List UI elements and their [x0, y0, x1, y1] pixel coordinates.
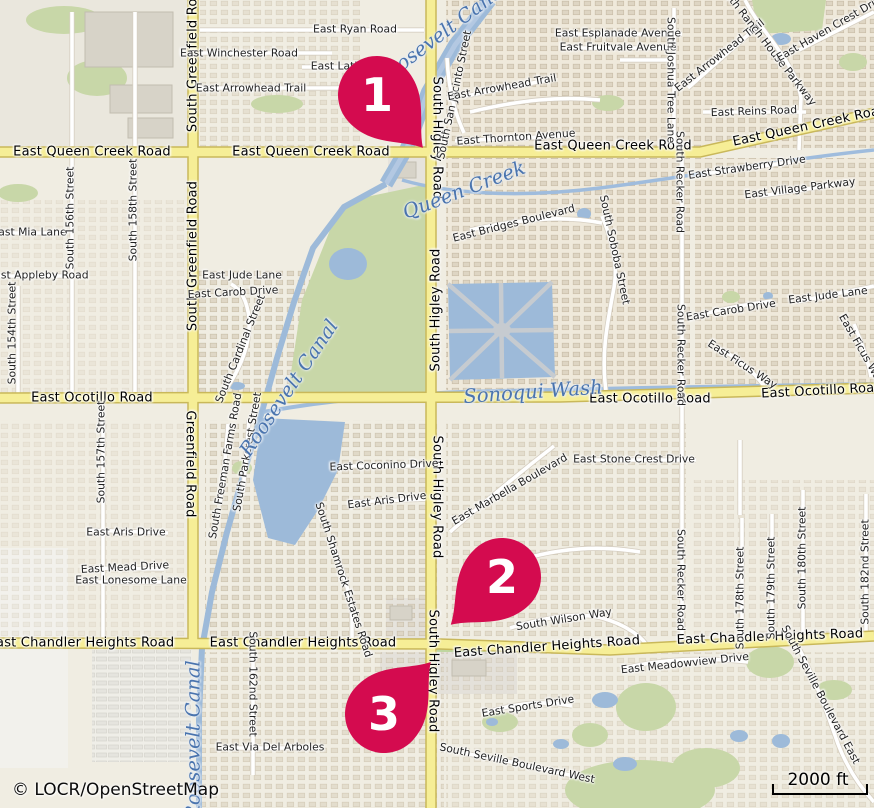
- marker-number: 1: [297, 15, 457, 175]
- map-marker-3[interactable]: 3: [304, 634, 464, 794]
- map-attribution: © LOCR/OpenStreetMap: [12, 780, 219, 800]
- marker-number: 3: [304, 634, 464, 794]
- scale-bar: [772, 784, 868, 795]
- marker-layer: 123: [0, 0, 874, 808]
- marker-number: 2: [422, 497, 582, 657]
- map-canvas[interactable]: East Queen Creek RoadEast Queen Creek Ro…: [0, 0, 874, 808]
- map-marker-2[interactable]: 2: [422, 497, 582, 657]
- map-marker-1[interactable]: 1: [297, 15, 457, 175]
